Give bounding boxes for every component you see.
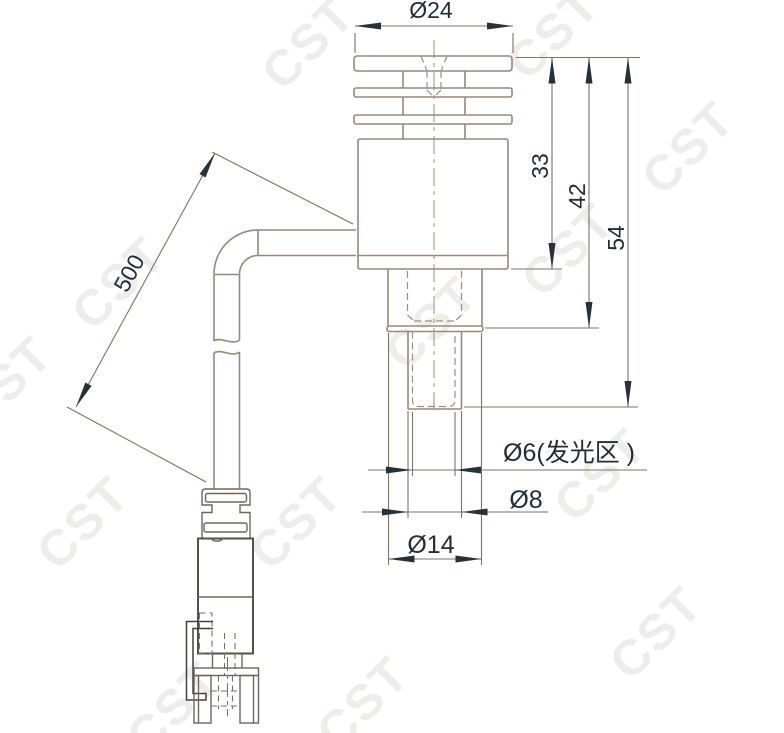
dim-42-label: 42 — [564, 183, 590, 209]
technical-drawing: CST CST CST CST CST CST CST CST CST CST … — [0, 0, 784, 733]
drawing-canvas: CST CST CST CST CST CST CST CST CST CST … — [0, 0, 784, 733]
dim-dia6-label: Ø6(发光区 ) — [503, 439, 635, 467]
dim-dia8-label: Ø8 — [509, 486, 542, 514]
dim-dia14-label: Ø14 — [407, 531, 454, 559]
dim-54-label: 54 — [603, 225, 629, 251]
dim-dia24-label: Ø24 — [409, 0, 453, 23]
dim-33-label: 33 — [527, 153, 553, 179]
